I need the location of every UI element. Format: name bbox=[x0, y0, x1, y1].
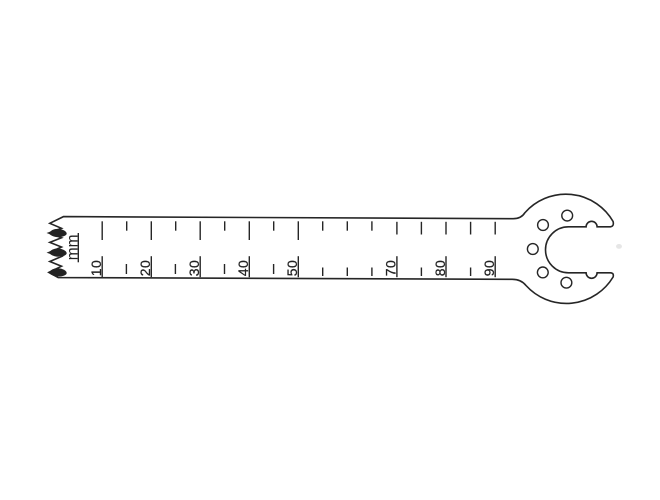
svg-text:10: 10 bbox=[88, 260, 104, 276]
svg-text:40: 40 bbox=[235, 260, 251, 276]
svg-text:90: 90 bbox=[481, 260, 497, 276]
svg-text:80: 80 bbox=[432, 260, 448, 276]
svg-text:mm: mm bbox=[64, 234, 81, 260]
svg-text:50: 50 bbox=[284, 260, 300, 276]
svg-text:20: 20 bbox=[137, 260, 153, 276]
svg-text:70: 70 bbox=[383, 260, 399, 276]
svg-text:30: 30 bbox=[186, 260, 202, 276]
